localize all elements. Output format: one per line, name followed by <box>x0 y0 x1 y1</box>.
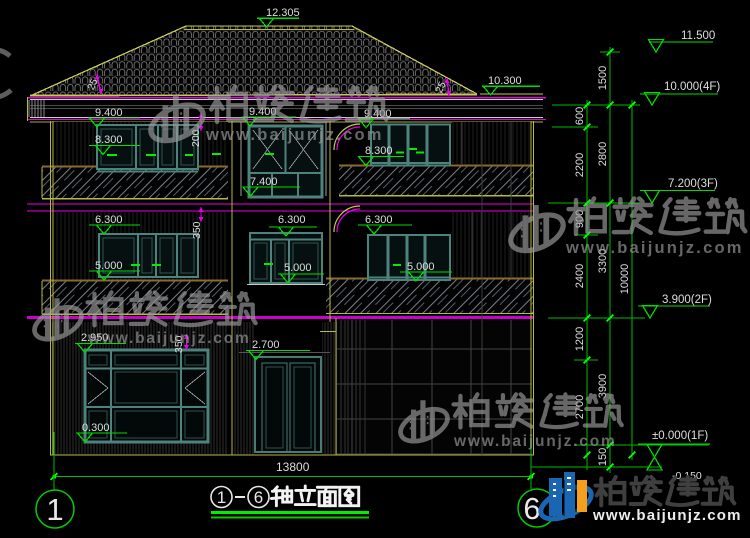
svg-text:7.200(3F): 7.200(3F) <box>668 178 718 190</box>
svg-text:8.300: 8.300 <box>95 134 123 146</box>
svg-text:13800: 13800 <box>276 460 310 474</box>
svg-text:150: 150 <box>597 448 609 466</box>
svg-text:11.500: 11.500 <box>681 30 715 42</box>
svg-text:5.000: 5.000 <box>95 260 123 272</box>
svg-text:www.baijunjz.com: www.baijunjz.com <box>565 239 744 257</box>
svg-text:±0.000(1F): ±0.000(1F) <box>652 430 708 442</box>
svg-text:1: 1 <box>46 492 63 527</box>
svg-text:www.baijunjz.com: www.baijunjz.com <box>592 507 742 524</box>
svg-text:2400: 2400 <box>574 264 586 288</box>
svg-text:350: 350 <box>191 221 203 239</box>
svg-text:10.000(4F): 10.000(4F) <box>664 81 720 93</box>
svg-text:6.300: 6.300 <box>95 214 123 226</box>
svg-text:10.300: 10.300 <box>488 75 522 87</box>
svg-text:7.400: 7.400 <box>250 176 278 188</box>
svg-text:www.baijunjz.com: www.baijunjz.com <box>453 433 617 450</box>
svg-text:www.baijunjz.com: www.baijunjz.com <box>87 330 251 347</box>
svg-text:1: 1 <box>217 488 226 507</box>
svg-text:9.400: 9.400 <box>95 107 123 119</box>
svg-text:1200: 1200 <box>574 327 586 351</box>
svg-text:600: 600 <box>574 107 586 125</box>
svg-text:6: 6 <box>254 488 263 507</box>
svg-text:10000: 10000 <box>619 264 631 295</box>
svg-text:0.300: 0.300 <box>82 422 110 434</box>
svg-text:5.000: 5.000 <box>284 262 312 274</box>
svg-text:2800: 2800 <box>597 142 609 166</box>
svg-text:2.700: 2.700 <box>252 339 280 351</box>
svg-text:6: 6 <box>523 491 540 526</box>
svg-text:8.300: 8.300 <box>365 145 393 157</box>
svg-text:3.900(2F): 3.900(2F) <box>662 294 712 306</box>
svg-text:5.000: 5.000 <box>407 261 435 273</box>
svg-text:www.baijunjz.com: www.baijunjz.com <box>205 126 384 144</box>
svg-text:6.300: 6.300 <box>365 214 393 226</box>
svg-text:1500: 1500 <box>597 66 609 90</box>
svg-text:2200: 2200 <box>574 153 586 177</box>
svg-text:12.305: 12.305 <box>266 7 300 19</box>
svg-text:6.300: 6.300 <box>278 214 306 226</box>
